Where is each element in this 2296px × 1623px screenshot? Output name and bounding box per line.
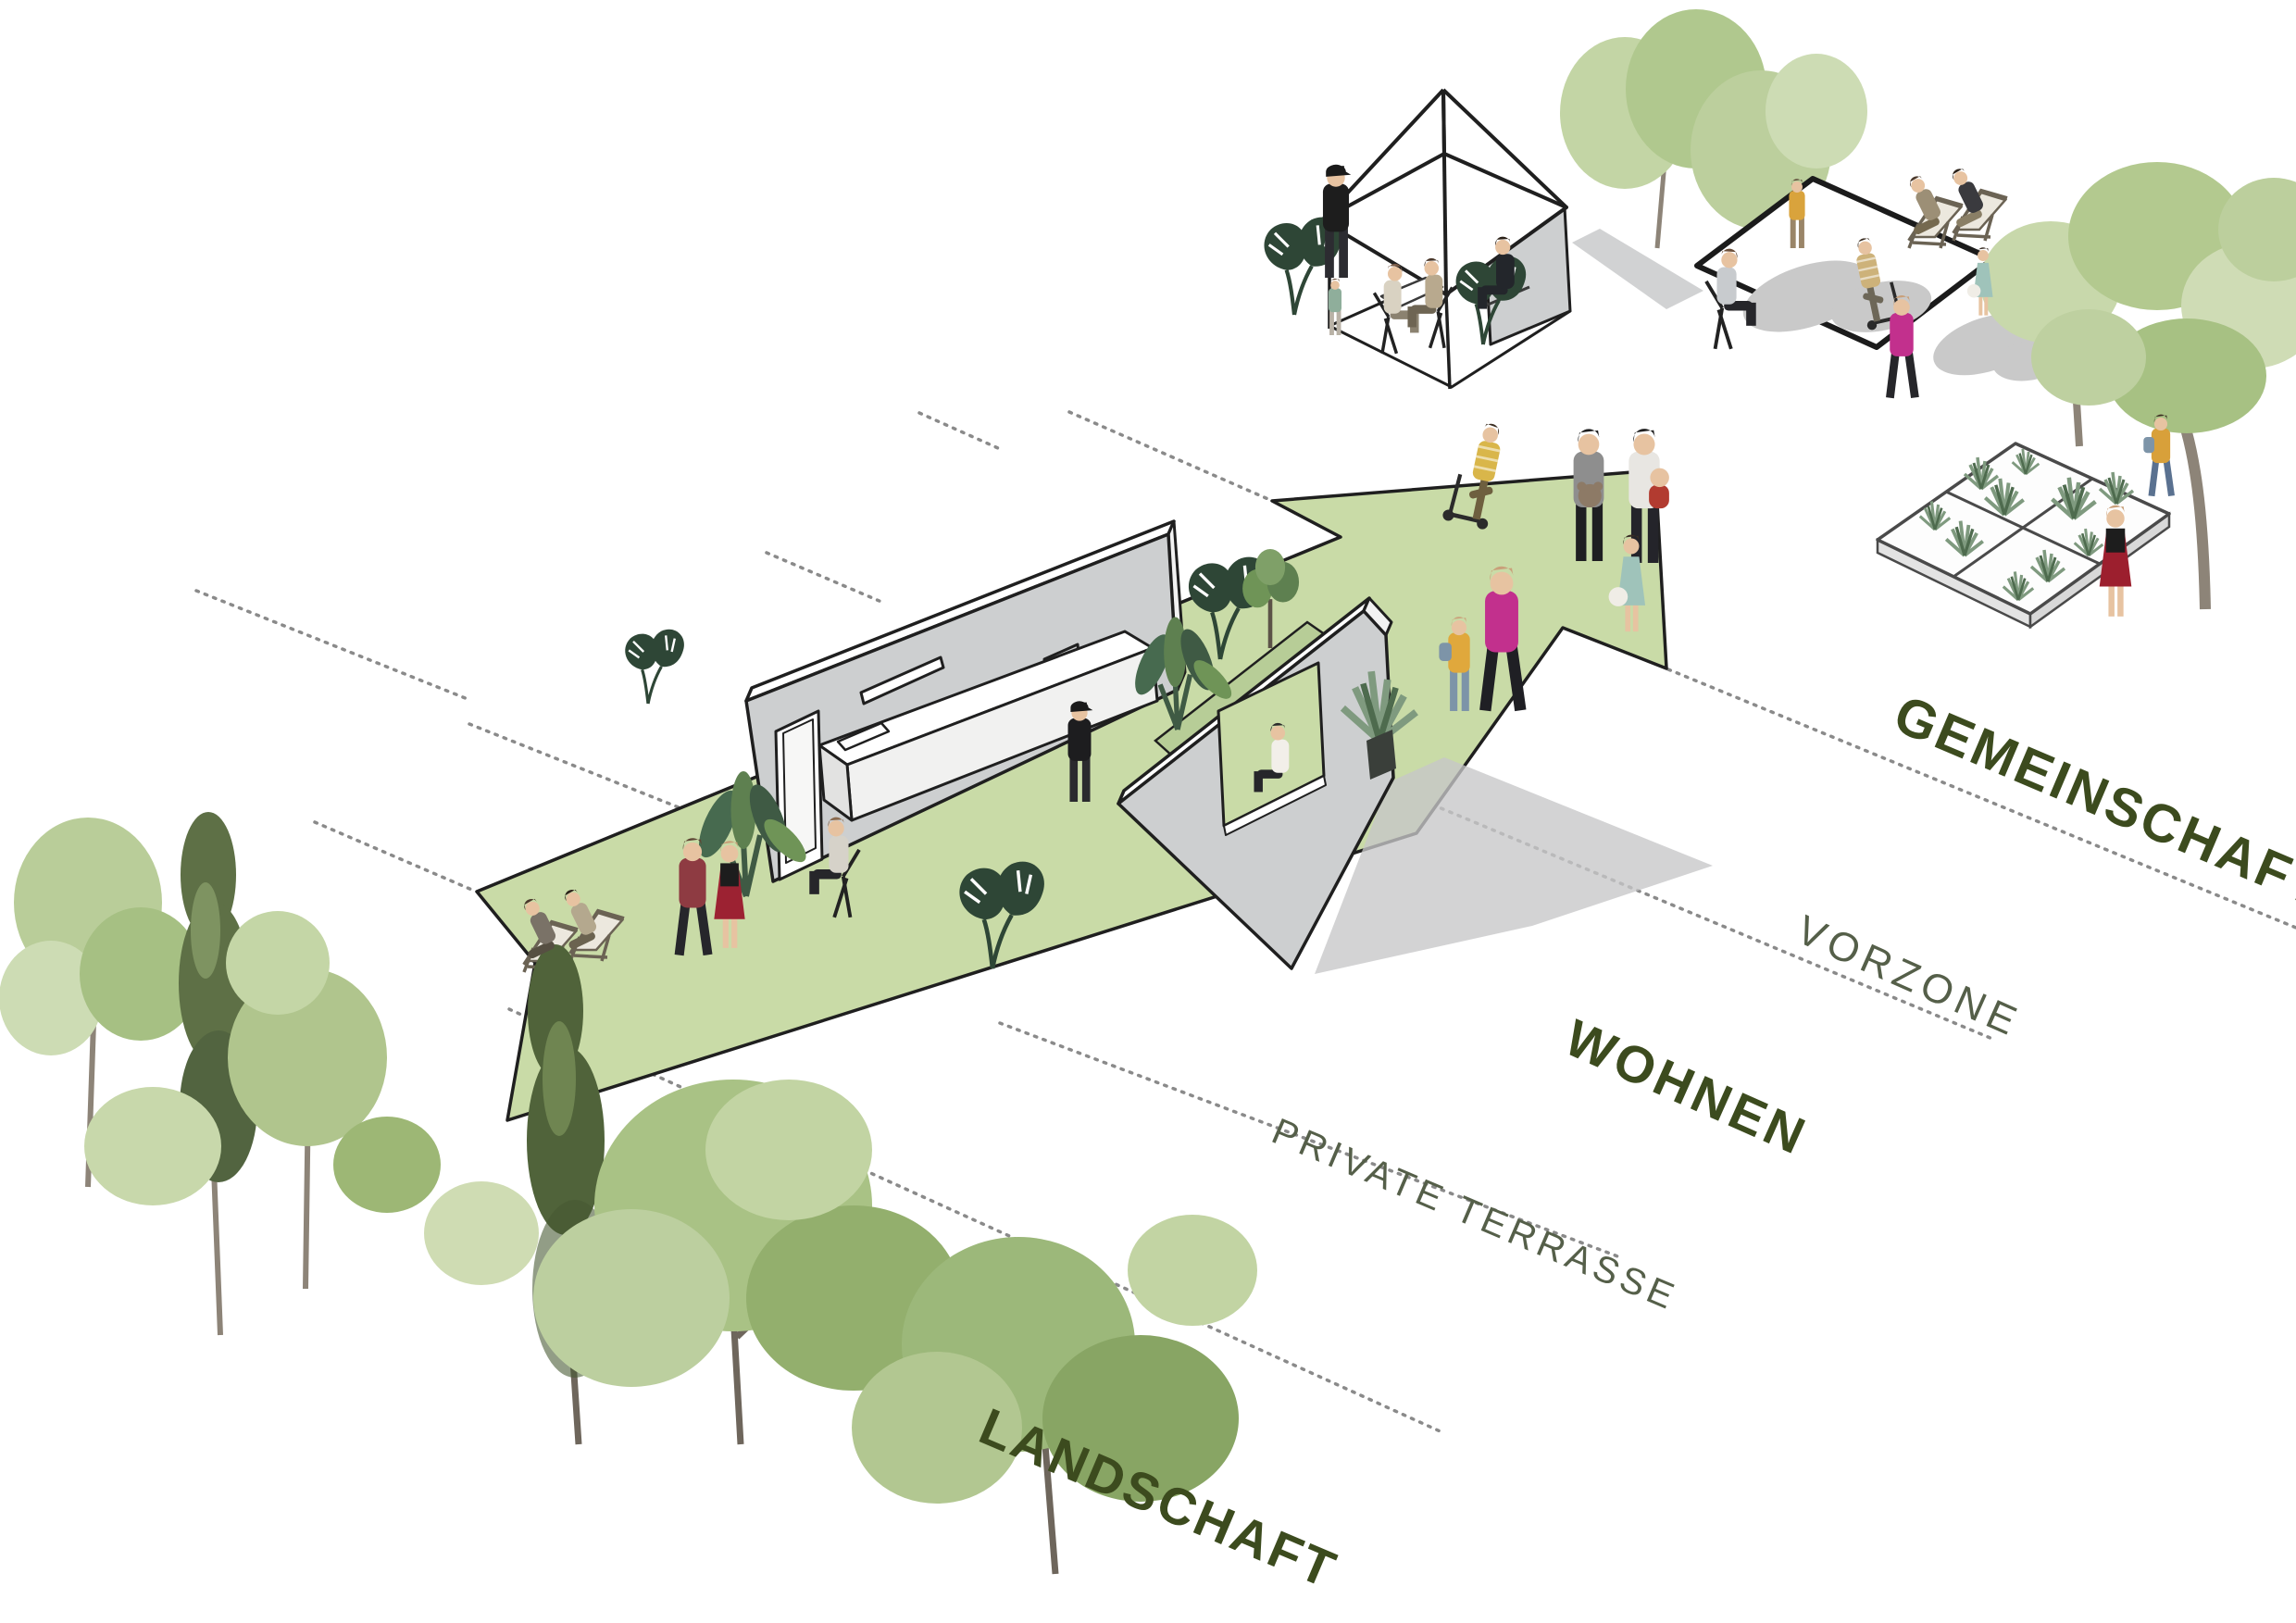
community-pavilion <box>1322 90 1570 389</box>
diagram-canvas: GEMEINSCHAFT VORZONE WOHNEN PRIVATE TERR… <box>0 0 2296 1623</box>
label-vorzone: VORZONE <box>1790 907 2028 1046</box>
pavilion-shadow <box>1572 229 1703 309</box>
monstera-plant-icon <box>625 630 684 704</box>
dotted-line <box>1069 412 1270 500</box>
dotted-line-gemeinschaft <box>1668 669 2296 928</box>
tree-grove-left <box>0 812 441 1335</box>
dotted-line <box>196 591 468 699</box>
dotted-line <box>469 724 693 813</box>
isometric-zoning-diagram: GEMEINSCHAFT VORZONE WOHNEN PRIVATE TERR… <box>0 0 2296 1623</box>
label-private-terrasse: PRIVATE TERRASSE <box>1267 1111 1684 1319</box>
dotted-line <box>919 413 998 448</box>
person-pavilion-standing-man <box>1323 165 1351 278</box>
dotted-line <box>315 822 474 891</box>
label-gemeinschaft: GEMEINSCHAFT <box>1886 683 2296 919</box>
label-wohnen: WOHNEN <box>1557 1008 1817 1167</box>
dotted-line <box>767 553 881 602</box>
community-garden-beds <box>1878 443 2169 627</box>
